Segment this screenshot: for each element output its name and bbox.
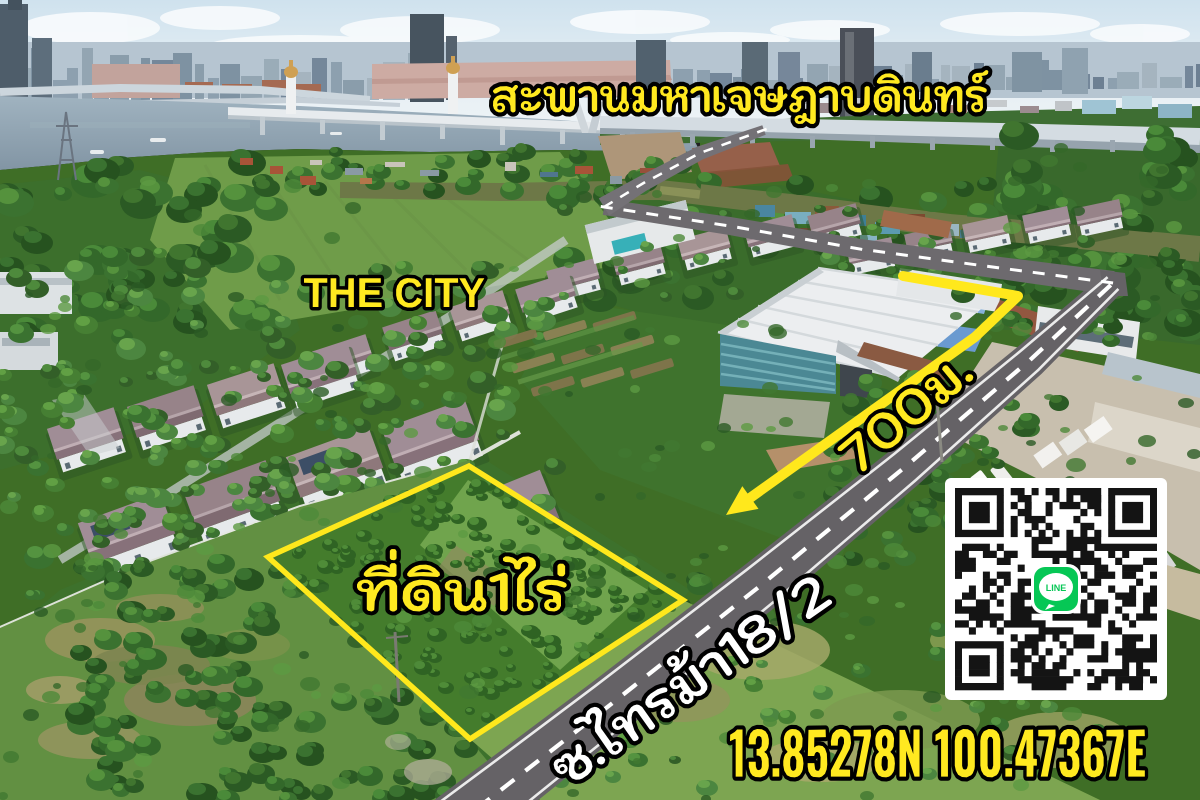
svg-text:LINE: LINE bbox=[1046, 583, 1067, 593]
